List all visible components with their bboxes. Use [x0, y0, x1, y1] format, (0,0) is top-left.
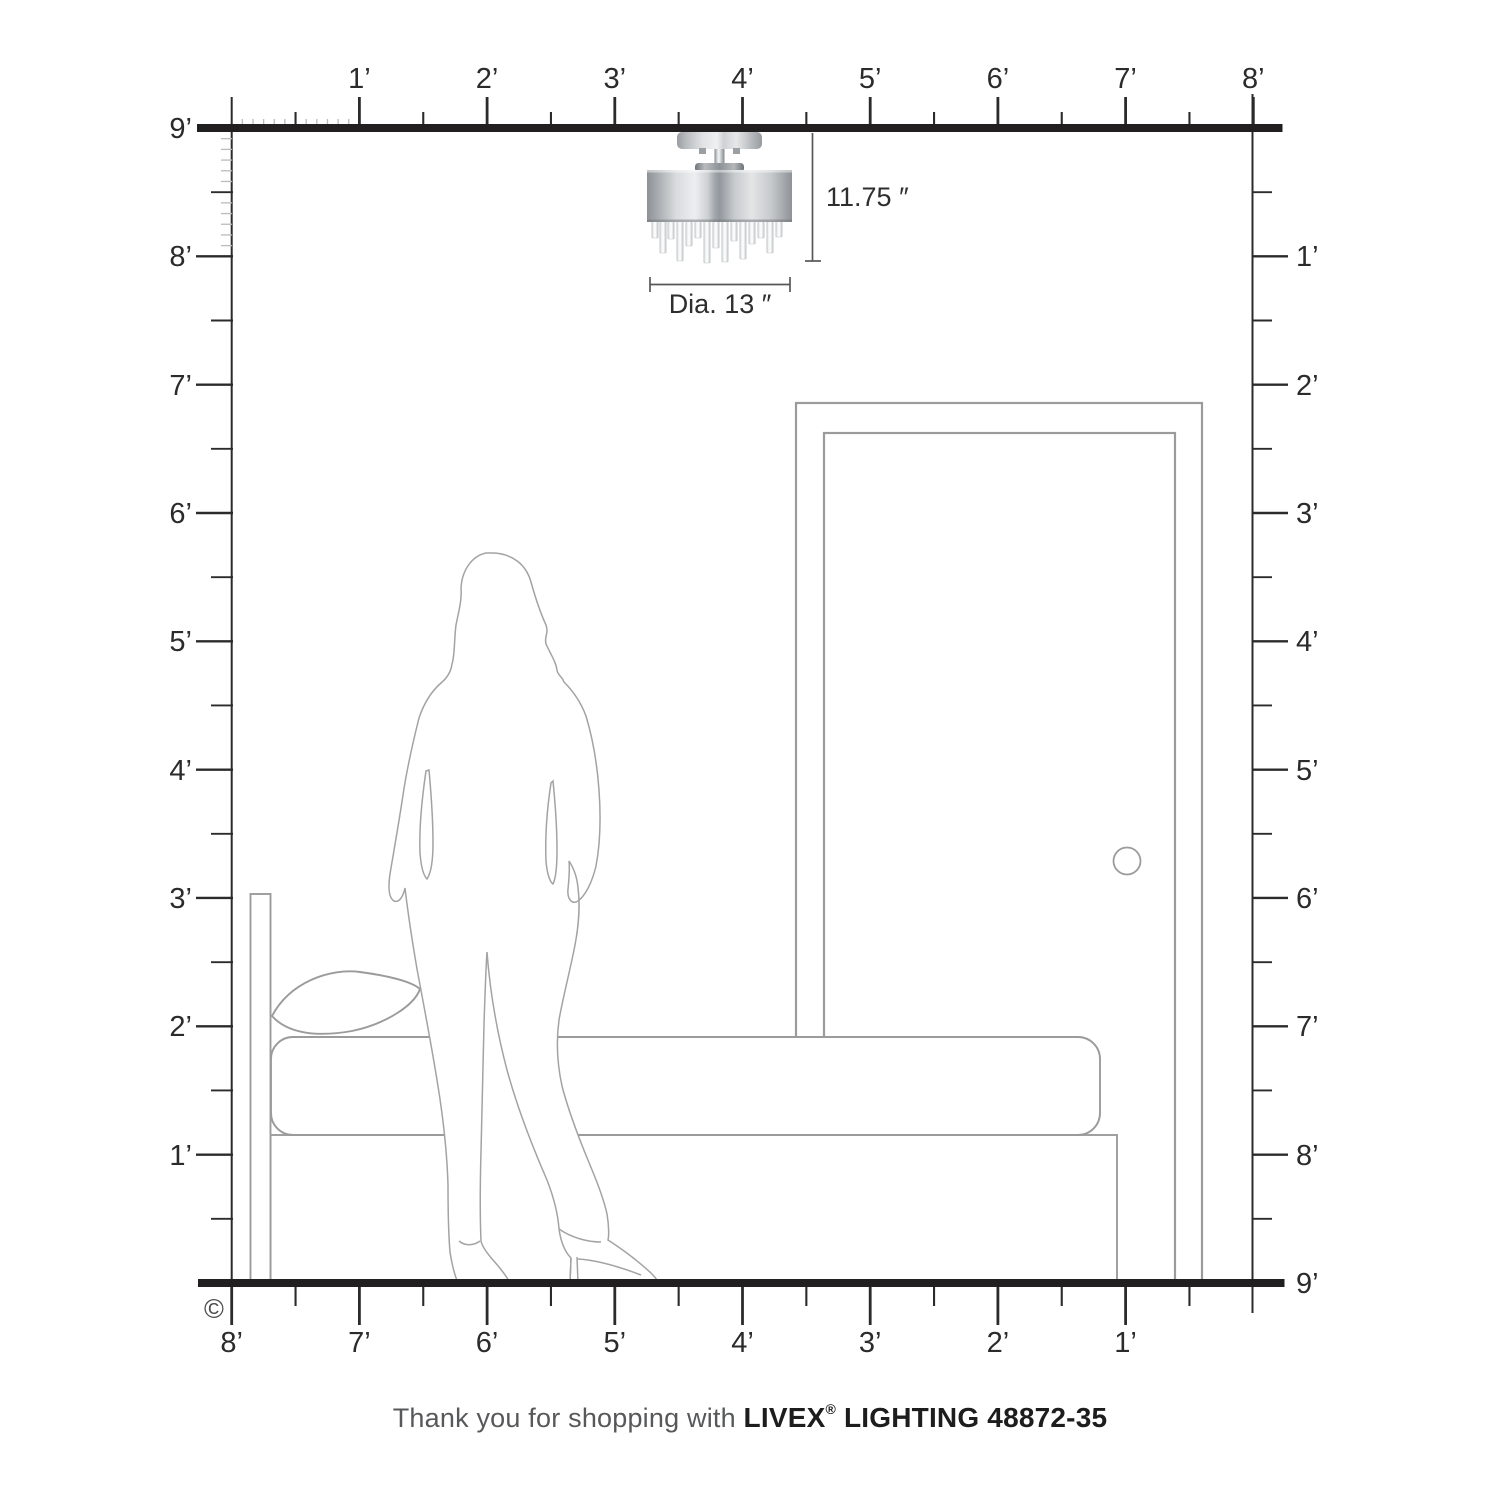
- room-scene: [251, 403, 1203, 1283]
- left-ruler-ticks: [196, 139, 233, 1219]
- height-dim-label: 11.75 ″: [826, 182, 909, 212]
- ruler-label: 7’: [348, 1327, 371, 1359]
- ruler-label: 4’: [1296, 626, 1319, 658]
- floor-line: [198, 1279, 1285, 1287]
- crystal-rod: [722, 219, 728, 262]
- ruler-label: 4’: [731, 1327, 754, 1359]
- ruler-label: 1’: [1114, 1327, 1137, 1359]
- height-dimension: [805, 133, 821, 261]
- ruler-label: 3’: [604, 63, 627, 95]
- bottom-ruler-ticks: [232, 1287, 1190, 1325]
- top-ruler-labels: 1’ 2’ 3’ 4’ 5’ 6’ 7’ 8’: [348, 63, 1264, 95]
- ruler-label: 8’: [169, 241, 192, 273]
- ruler-label: 4’: [169, 755, 192, 787]
- ruler-label: 7’: [169, 370, 192, 402]
- crystal-rod: [731, 219, 737, 241]
- ruler-label: 4’: [731, 63, 754, 95]
- ruler-label: 8’: [1296, 1140, 1319, 1172]
- ruler-label: 5’: [859, 63, 882, 95]
- crystal-rod: [749, 219, 755, 244]
- ruler-label: 7’: [1114, 63, 1137, 95]
- ruler-label: 1’: [1296, 241, 1319, 273]
- ruler-label: 3’: [1296, 498, 1319, 530]
- right-ruler-labels: 1’ 2’ 3’ 4’ 5’ 6’ 7’ 8’ 9’: [1296, 241, 1319, 1300]
- left-ruler-labels: 9’ 8’ 7’ 6’ 5’ 4’ 3’ 2’ 1’: [169, 113, 192, 1172]
- footer: Thank you for shopping with LIVEX® LIGHT…: [0, 1401, 1500, 1434]
- mattress: [271, 1037, 1100, 1135]
- crystal-rod: [660, 219, 666, 253]
- ruler-label: 2’: [1296, 370, 1319, 402]
- ruler-label: 1’: [348, 63, 371, 95]
- ruler-label: 6’: [987, 63, 1010, 95]
- ruler-label: 2’: [476, 63, 499, 95]
- ruler-label: 1’: [169, 1140, 192, 1172]
- ruler-label: 6’: [1296, 883, 1319, 915]
- ruler-label: 6’: [169, 498, 192, 530]
- diagram-page: 1’ 2’ 3’ 4’ 5’ 6’ 7’ 8’ 9’ 8’ 7’ 6’ 5’ 4…: [0, 0, 1500, 1500]
- ceiling-line: [197, 124, 1283, 132]
- ruler-label: 8’: [220, 1327, 243, 1359]
- fixture-drum-shade: [647, 170, 792, 222]
- canopy-nub-left: [699, 148, 706, 154]
- headboard: [251, 894, 271, 1283]
- ruler-label: 9’: [169, 113, 192, 145]
- bottom-ruler-labels: 8’ 7’ 6’ 5’ 4’ 3’ 2’ 1’: [220, 1327, 1136, 1359]
- copyright-symbol: ©: [204, 1294, 224, 1324]
- footer-thankyou-text: Thank you for shopping with: [393, 1403, 744, 1433]
- dimension-diagram: 1’ 2’ 3’ 4’ 5’ 6’ 7’ 8’ 9’ 8’ 7’ 6’ 5’ 4…: [0, 0, 1500, 1500]
- bed-base: [271, 1135, 1118, 1283]
- ruler-label: 5’: [1296, 755, 1319, 787]
- crystal-rod: [713, 219, 719, 248]
- ruler-label: 2’: [169, 1011, 192, 1043]
- ruler-label: 3’: [169, 883, 192, 915]
- crystal-rod: [677, 219, 683, 261]
- drum-bottom-rim: [647, 220, 792, 223]
- pillow: [272, 971, 420, 1033]
- fixture-crystal-rods: [652, 219, 782, 263]
- ruler-label: 7’: [1296, 1011, 1319, 1043]
- ruler-label: 5’: [604, 1327, 627, 1359]
- right-ruler-ticks: [1252, 192, 1288, 1219]
- crystal-rod: [740, 219, 746, 259]
- crystal-rod: [704, 219, 710, 263]
- drum-top-rim: [647, 170, 792, 173]
- door-knob: [1114, 848, 1141, 875]
- ruler-label: 9’: [1296, 1268, 1319, 1300]
- ruler-label: 3’: [859, 1327, 882, 1359]
- registered-mark: ®: [825, 1401, 836, 1417]
- footer-model-number: LIGHTING 48872-35: [836, 1402, 1107, 1433]
- ruler-label: 2’: [987, 1327, 1010, 1359]
- light-fixture: 11.75 ″ Dia. 13 ″: [647, 132, 909, 319]
- ruler-label: 6’: [476, 1327, 499, 1359]
- crystal-rod: [686, 219, 692, 246]
- crystal-rod: [767, 219, 773, 253]
- diameter-dim-label: Dia. 13 ″: [669, 289, 772, 319]
- fixture-canopy: [677, 132, 762, 149]
- ruler-label: 8’: [1242, 63, 1265, 95]
- ruler-label: 5’: [169, 626, 192, 658]
- footer-brand: LIVEX: [744, 1402, 826, 1433]
- canopy-nub-right: [733, 148, 740, 154]
